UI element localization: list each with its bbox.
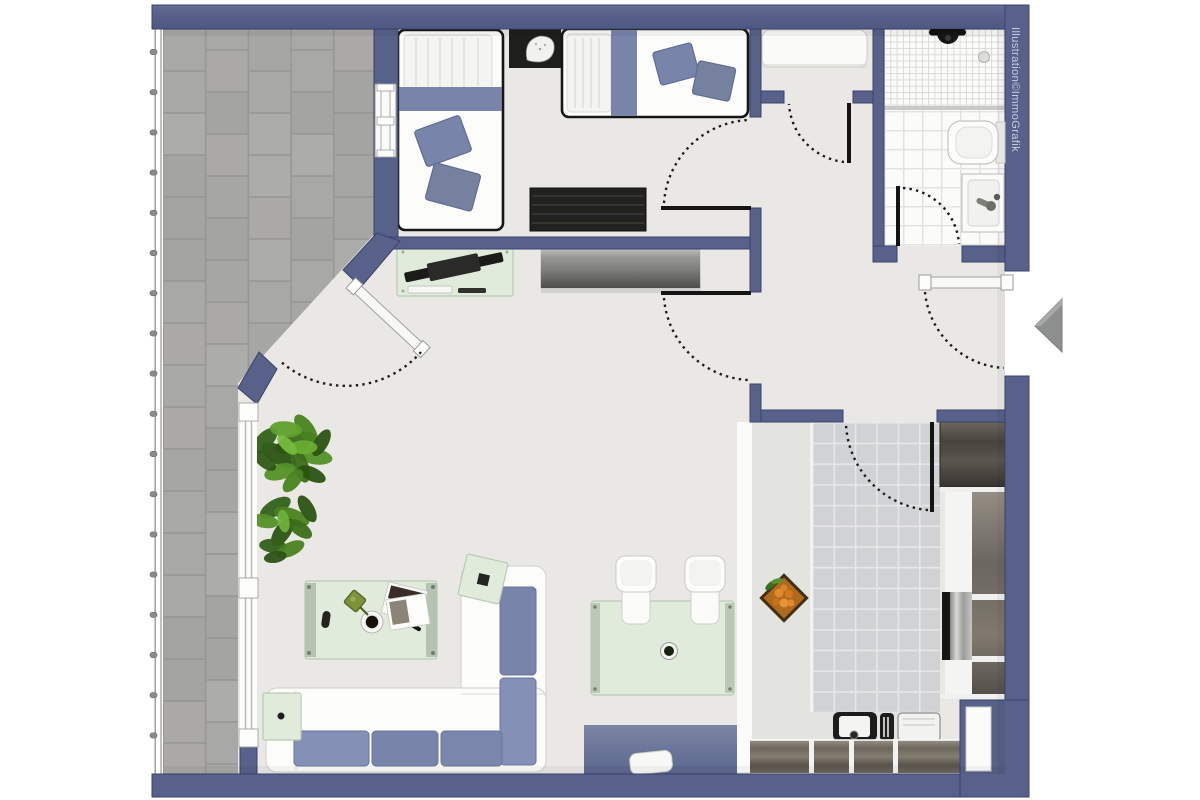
svg-text:Illustration©ImmoGrafik: Illustration©ImmoGrafik <box>1009 27 1021 152</box>
